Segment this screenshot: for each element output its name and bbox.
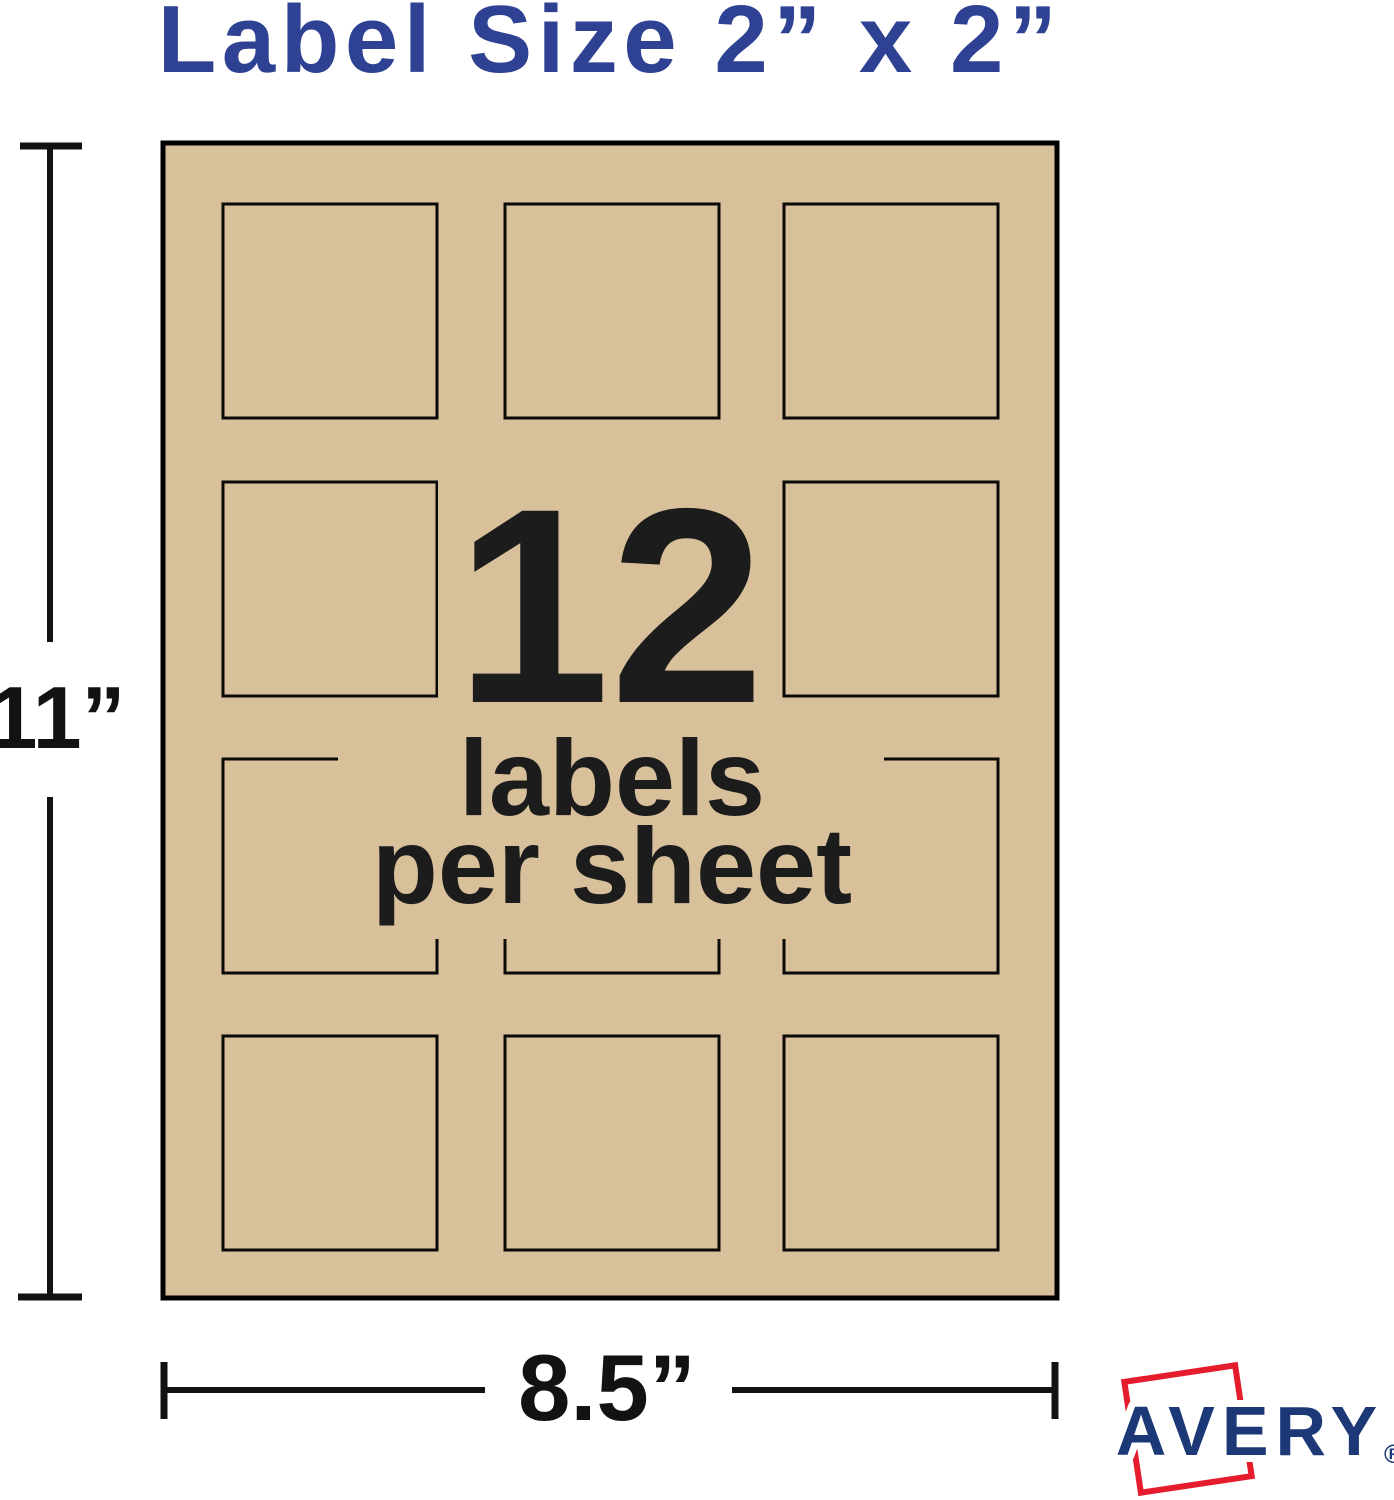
avery-wordmark: AVERY	[1116, 1392, 1384, 1470]
label-count: 12	[455, 450, 764, 761]
width-dimension-label: 8.5”	[518, 1335, 696, 1440]
height-dimension-label: 11”	[0, 668, 126, 767]
page-title: Label Size 2” x 2”	[158, 0, 1063, 93]
label-sheet: 12 labels per sheet	[163, 143, 1057, 1298]
per-sheet-line: per sheet	[372, 805, 852, 926]
registered-mark: ®	[1384, 1439, 1394, 1469]
product-diagram: Label Size 2” x 2” 12 labels per sheet	[0, 0, 1394, 1500]
